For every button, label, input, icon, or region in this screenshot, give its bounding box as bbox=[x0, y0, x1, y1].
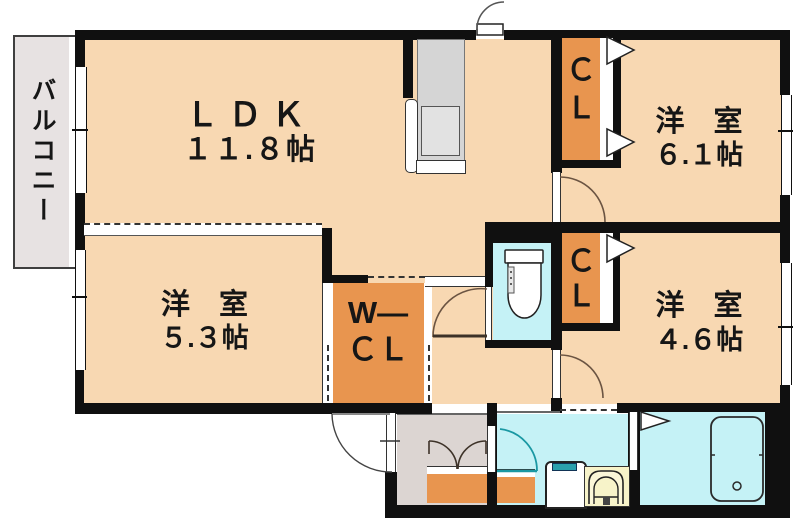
wall-cl2-bottom bbox=[553, 323, 620, 331]
door-entry bbox=[386, 413, 396, 472]
service-door bbox=[477, 2, 504, 35]
wcl-top-dash bbox=[368, 276, 425, 278]
wall-kitchen-stub bbox=[403, 30, 413, 98]
closet-middle-label: Ｃ Ｌ bbox=[560, 245, 602, 314]
door-toilet bbox=[485, 287, 492, 340]
wcl-label-line1: W― bbox=[332, 294, 424, 331]
window-room61-tick bbox=[778, 130, 793, 132]
window-room61 bbox=[781, 95, 792, 195]
washroom-top-line bbox=[497, 411, 560, 413]
wall-bottom-wcl bbox=[322, 403, 432, 414]
closet-middle-label-c: Ｃ bbox=[560, 245, 602, 280]
window-room53-tick bbox=[72, 296, 87, 298]
closet-top-label: Ｃ Ｌ bbox=[560, 52, 602, 127]
door-room46 bbox=[552, 350, 561, 398]
toilet-room-floor bbox=[493, 243, 551, 340]
wall-entry-left-low bbox=[385, 472, 397, 505]
wall-top-right bbox=[504, 30, 790, 40]
washing-machine-panel bbox=[552, 463, 577, 471]
room61-size: ６.１帖 bbox=[618, 133, 780, 172]
closet-middle-label-l: Ｌ bbox=[560, 280, 602, 315]
window-room46 bbox=[781, 263, 792, 385]
partition-ldk-53 bbox=[84, 223, 322, 236]
closet-top-label-l: Ｌ bbox=[560, 90, 602, 128]
balcony-label: バルコニー bbox=[24, 52, 60, 252]
wcl-left-dash bbox=[327, 345, 329, 401]
ldk-size: １１.８帖 bbox=[130, 126, 370, 168]
wall-washroom-corner bbox=[617, 403, 628, 413]
wall-room-divider bbox=[553, 222, 790, 233]
wall-right-1 bbox=[780, 40, 790, 95]
door-washroom bbox=[487, 426, 496, 472]
opening-ldk-hall bbox=[425, 276, 485, 287]
washroom-top-dash bbox=[560, 409, 617, 411]
bathroom-floor bbox=[640, 412, 765, 505]
wall-cl1-bottom bbox=[562, 160, 613, 168]
washroom-cabinet bbox=[497, 477, 535, 503]
room46-size: ４.６帖 bbox=[618, 318, 780, 357]
wcl-label-line2: ＣＬ bbox=[332, 331, 424, 368]
wall-bath-top bbox=[640, 403, 765, 412]
wcl-right-dash bbox=[428, 345, 430, 401]
door-room61 bbox=[552, 172, 561, 222]
window-room46-tick bbox=[778, 326, 793, 328]
kitchen-sink bbox=[421, 106, 460, 156]
kitchen-counter-cap bbox=[416, 160, 466, 174]
washbasin-counter bbox=[584, 466, 630, 507]
closet-top-label-c: Ｃ bbox=[560, 52, 602, 90]
wall-bottom-right-block bbox=[765, 403, 790, 518]
wall-top-left bbox=[75, 30, 476, 40]
window-room53 bbox=[75, 250, 86, 370]
wall-wcl-top bbox=[322, 275, 368, 283]
wall-bottom-53 bbox=[75, 403, 332, 414]
shoe-cabinet bbox=[427, 474, 487, 503]
wall-left-1 bbox=[75, 40, 85, 67]
floor-plan: バルコニー bbox=[0, 0, 800, 523]
wall-toilet-left-upper bbox=[485, 243, 493, 287]
window-balcony-tick bbox=[72, 129, 88, 131]
door-bathroom bbox=[629, 412, 638, 470]
wcl-label: W― ＣＬ bbox=[332, 294, 424, 368]
wall-left-2 bbox=[75, 193, 85, 250]
room53-size: ５.３帖 bbox=[92, 316, 317, 355]
wall-toilet-bottom bbox=[485, 340, 560, 348]
